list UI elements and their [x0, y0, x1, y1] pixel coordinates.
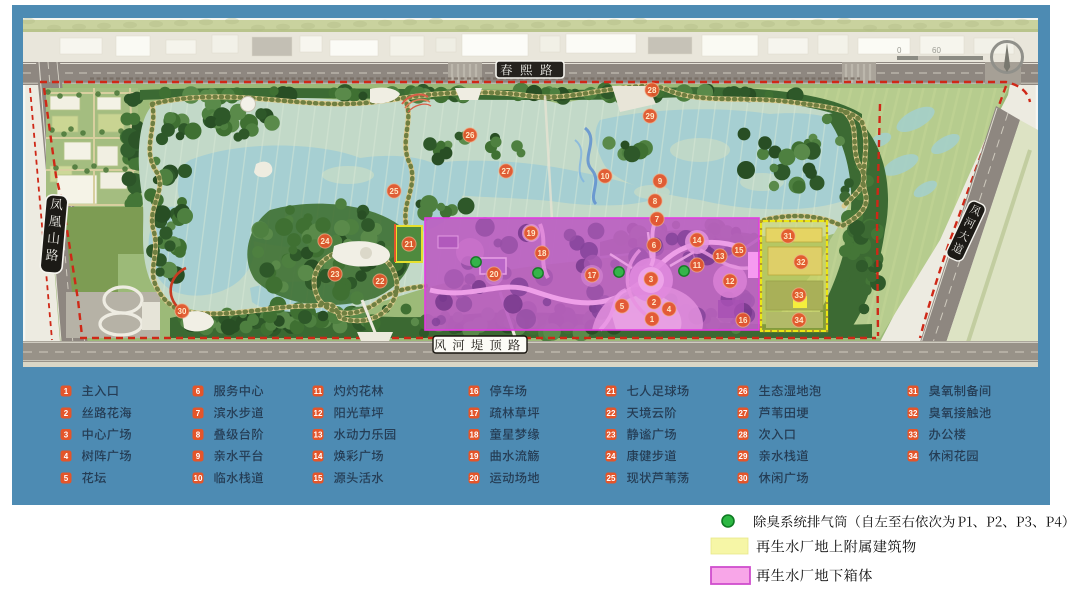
svg-text:7: 7 — [196, 409, 201, 418]
svg-text:60: 60 — [932, 46, 941, 55]
svg-text:34: 34 — [795, 316, 804, 325]
svg-text:24: 24 — [607, 452, 616, 461]
svg-text:8: 8 — [653, 197, 658, 206]
svg-text:34: 34 — [909, 452, 918, 461]
svg-text:25: 25 — [607, 474, 616, 483]
svg-text:5: 5 — [64, 474, 69, 483]
svg-text:19: 19 — [470, 452, 479, 461]
svg-text:6: 6 — [196, 387, 201, 396]
svg-text:31: 31 — [784, 232, 793, 241]
svg-text:15: 15 — [314, 474, 323, 483]
svg-text:16: 16 — [470, 387, 479, 396]
svg-text:30: 30 — [739, 474, 748, 483]
svg-text:31: 31 — [909, 387, 918, 396]
svg-text:27: 27 — [502, 167, 511, 176]
svg-text:25: 25 — [390, 187, 399, 196]
svg-text:3: 3 — [64, 430, 69, 439]
svg-text:12: 12 — [726, 277, 735, 286]
svg-text:32: 32 — [909, 409, 918, 418]
svg-text:0: 0 — [897, 46, 902, 55]
svg-text:19: 19 — [527, 229, 536, 238]
svg-text:9: 9 — [658, 177, 663, 186]
svg-text:4: 4 — [64, 452, 69, 461]
svg-text:28: 28 — [648, 86, 657, 95]
svg-text:29: 29 — [739, 452, 748, 461]
svg-text:11: 11 — [314, 387, 323, 396]
svg-text:17: 17 — [588, 271, 597, 280]
svg-text:2: 2 — [652, 298, 657, 307]
svg-text:20: 20 — [470, 474, 479, 483]
svg-text:1: 1 — [64, 387, 69, 396]
svg-text:24: 24 — [321, 237, 330, 246]
svg-text:3: 3 — [649, 275, 654, 284]
svg-text:18: 18 — [538, 249, 547, 258]
svg-text:29: 29 — [646, 112, 655, 121]
svg-text:17: 17 — [470, 409, 479, 418]
svg-text:7: 7 — [655, 215, 660, 224]
svg-text:30: 30 — [178, 307, 187, 316]
svg-text:23: 23 — [331, 270, 340, 279]
svg-text:23: 23 — [607, 430, 616, 439]
svg-text:33: 33 — [795, 291, 804, 300]
svg-text:13: 13 — [314, 430, 323, 439]
svg-text:27: 27 — [739, 409, 748, 418]
svg-text:26: 26 — [466, 131, 475, 140]
svg-text:33: 33 — [909, 430, 918, 439]
svg-text:12: 12 — [314, 409, 323, 418]
svg-text:13: 13 — [716, 252, 725, 261]
svg-text:14: 14 — [314, 452, 323, 461]
svg-text:18: 18 — [470, 430, 479, 439]
svg-text:5: 5 — [620, 302, 625, 311]
svg-text:8: 8 — [196, 430, 201, 439]
svg-text:15: 15 — [735, 246, 744, 255]
svg-text:32: 32 — [797, 258, 806, 267]
svg-text:6: 6 — [652, 241, 657, 250]
svg-text:2: 2 — [64, 409, 69, 418]
svg-text:22: 22 — [607, 409, 616, 418]
svg-text:21: 21 — [607, 387, 616, 396]
svg-text:22: 22 — [376, 277, 385, 286]
svg-text:21: 21 — [405, 240, 414, 249]
svg-text:26: 26 — [739, 387, 748, 396]
svg-text:10: 10 — [601, 172, 610, 181]
svg-text:16: 16 — [739, 316, 748, 325]
svg-text:9: 9 — [196, 452, 201, 461]
svg-text:1: 1 — [650, 315, 655, 324]
svg-text:10: 10 — [194, 474, 203, 483]
svg-text:28: 28 — [739, 430, 748, 439]
svg-text:20: 20 — [490, 270, 499, 279]
svg-text:14: 14 — [693, 236, 702, 245]
svg-text:4: 4 — [667, 305, 672, 314]
svg-text:11: 11 — [693, 261, 702, 270]
